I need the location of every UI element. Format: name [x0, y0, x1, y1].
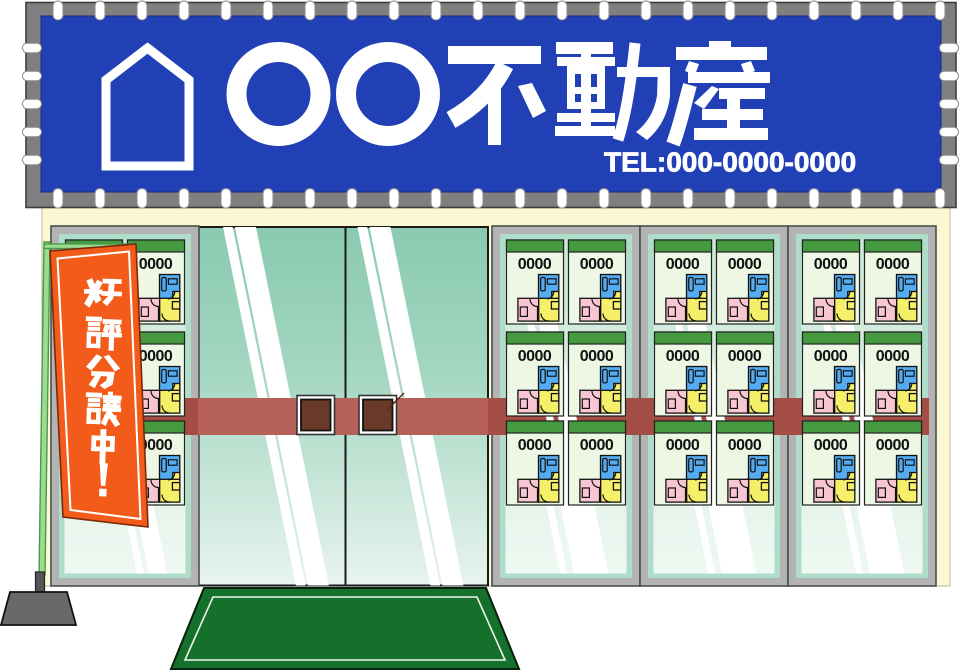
svg-text:TEL:000-0000-0000: TEL:000-0000-0000 [604, 147, 856, 178]
